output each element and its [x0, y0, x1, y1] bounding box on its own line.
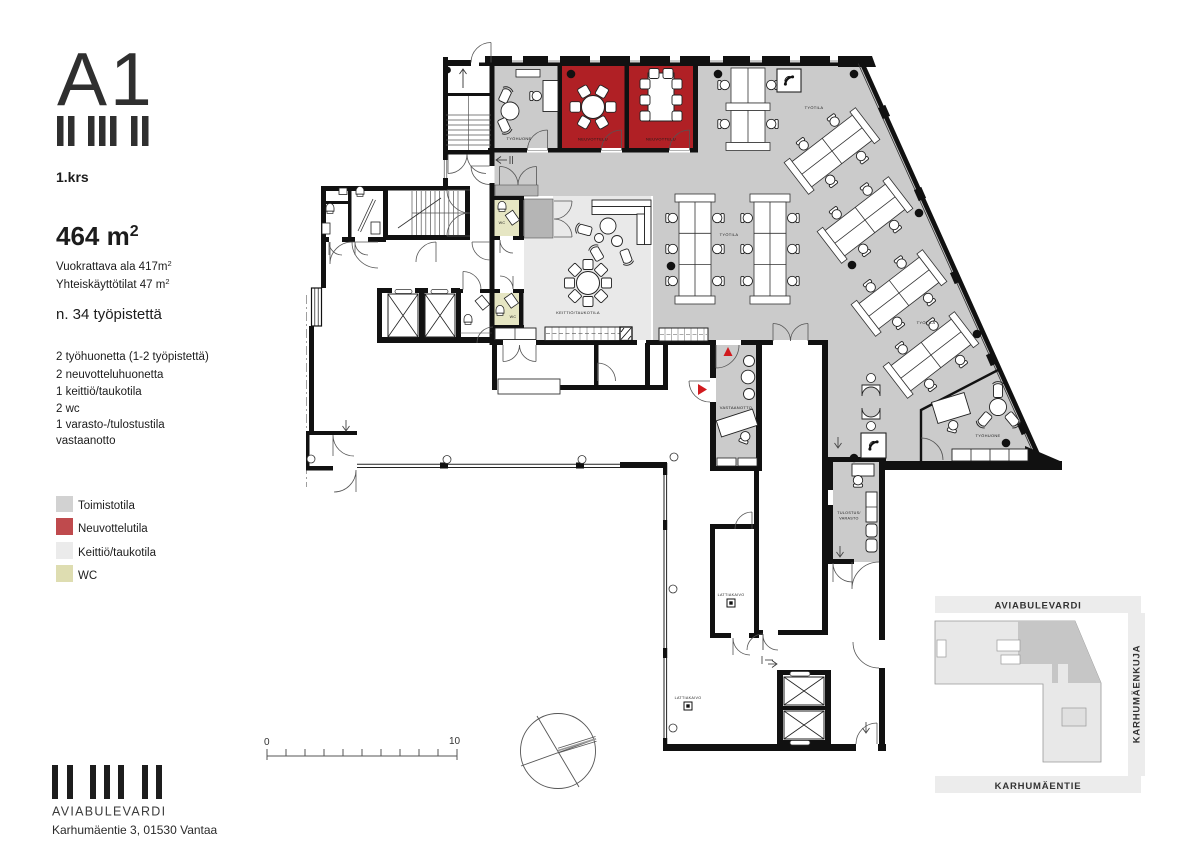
svg-text:WC: WC [510, 315, 517, 319]
svg-text:10: 10 [449, 736, 461, 747]
svg-text:TYÖTILA: TYÖTILA [805, 105, 824, 110]
svg-text:464 m2: 464 m2 [56, 221, 139, 251]
svg-text:AVIABULEVARDI: AVIABULEVARDI [52, 805, 166, 819]
svg-text:LATTIAKAIVO: LATTIAKAIVO [675, 696, 702, 700]
svg-text:Vuokrattava ala 417m2: Vuokrattava ala 417m2 [56, 259, 172, 273]
svg-text:Neuvottelutila: Neuvottelutila [78, 523, 148, 535]
svg-text:2 neuvotteluhuonetta: 2 neuvotteluhuonetta [56, 369, 164, 381]
svg-text:Keittiö/taukotila: Keittiö/taukotila [78, 547, 157, 559]
svg-text:TULOSTUS/: TULOSTUS/ [837, 511, 861, 515]
svg-text:1 keittiö/taukotila: 1 keittiö/taukotila [56, 386, 142, 398]
svg-text:LATTIAKAIVO: LATTIAKAIVO [718, 593, 745, 597]
svg-text:NEUVOTTELU: NEUVOTTELU [578, 137, 608, 142]
svg-text:KARHUMÄENTIE: KARHUMÄENTIE [995, 781, 1082, 792]
svg-text:vastaanotto: vastaanotto [56, 435, 115, 447]
svg-text:1.krs: 1.krs [56, 169, 89, 185]
svg-text:Karhumäentie 3, 01530 Vantaa: Karhumäentie 3, 01530 Vantaa [52, 823, 218, 837]
svg-text:0: 0 [264, 737, 270, 748]
svg-text:Yhteiskäyttötilat 47 m2: Yhteiskäyttötilat 47 m2 [56, 277, 169, 291]
svg-text:VASTAANOTTO: VASTAANOTTO [720, 405, 752, 410]
svg-text:NEUVOTTELU: NEUVOTTELU [646, 137, 676, 142]
svg-text:TYÖTILA: TYÖTILA [917, 320, 936, 325]
svg-text:TYÖHUONE: TYÖHUONE [975, 433, 1000, 438]
svg-text:AVIABULEVARDI: AVIABULEVARDI [994, 601, 1081, 612]
svg-text:A1: A1 [57, 37, 155, 121]
svg-text:VARASTO: VARASTO [839, 517, 858, 521]
svg-text:TYÖHUONE: TYÖHUONE [506, 136, 531, 141]
svg-text:KEITTIÖ/TAUKOTILA: KEITTIÖ/TAUKOTILA [556, 310, 600, 315]
svg-text:TYÖTILA: TYÖTILA [720, 232, 739, 237]
svg-text:WC: WC [499, 221, 506, 225]
svg-text:2 wc: 2 wc [56, 403, 80, 415]
svg-text:1 varasto-/tulostustila: 1 varasto-/tulostustila [56, 419, 165, 431]
svg-text:WC: WC [78, 570, 97, 582]
svg-text:Toimistotila: Toimistotila [78, 500, 135, 512]
svg-text:KARHUMÄENKUJA: KARHUMÄENKUJA [1132, 645, 1143, 744]
svg-text:2 työhuonetta (1-2 työpistettä: 2 työhuonetta (1-2 työpistettä) [56, 351, 209, 363]
svg-text:n. 34 työpistettä: n. 34 työpistettä [56, 306, 163, 323]
